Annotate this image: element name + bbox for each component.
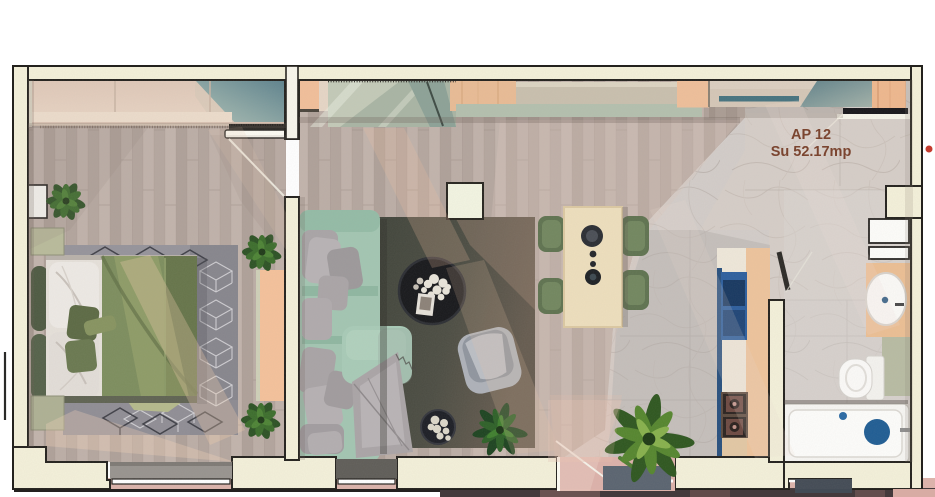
svg-text:AP 12: AP 12 xyxy=(791,127,831,143)
svg-text:Su 52.17mp: Su 52.17mp xyxy=(771,144,852,160)
